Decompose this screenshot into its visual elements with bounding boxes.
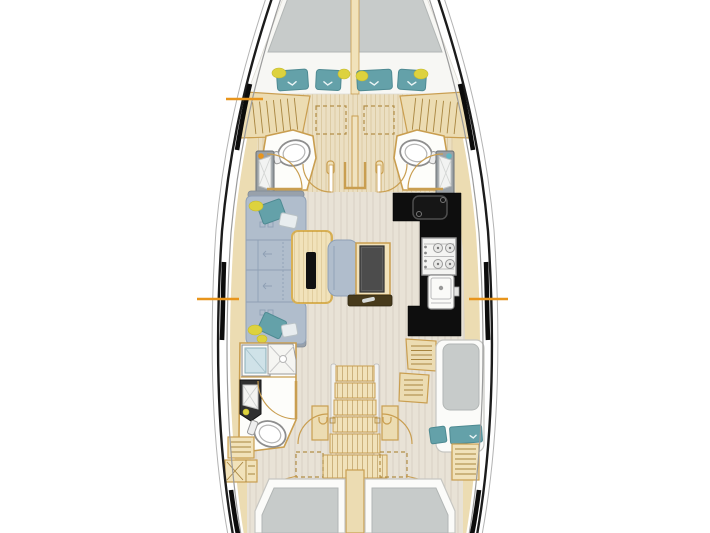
locker-wedge-starboard [400, 92, 470, 138]
salon-table [292, 231, 332, 303]
head-forward-starboard [394, 130, 454, 195]
center-console [346, 470, 364, 533]
stove [422, 238, 456, 275]
pillow [429, 426, 447, 444]
yacht-floor-plan: Sailing yacht interior layout — top-down… [0, 0, 710, 533]
sofa-pillow-white [279, 212, 298, 228]
shower-bench [242, 345, 270, 376]
single-berth [429, 340, 484, 452]
hull-window [486, 262, 488, 340]
pillow [449, 425, 482, 444]
pen-tray [348, 295, 392, 306]
shower-stall [268, 344, 296, 374]
shelf-aft [452, 444, 479, 480]
head-aft-port [239, 343, 296, 451]
reading-light [414, 69, 428, 79]
cushion-accent [257, 335, 267, 343]
reading-light [356, 71, 368, 81]
berth-port [255, 479, 345, 533]
reading-light [272, 68, 286, 78]
floor-plan-stage: Sailing yacht interior layout — top-down… [0, 0, 710, 533]
table-leaf-slot [306, 252, 316, 289]
cabin-door-leaf [377, 165, 381, 192]
cushion-accent [248, 325, 262, 335]
hull-window [222, 262, 224, 340]
locker-lower [399, 373, 429, 403]
galley-sink-lower [428, 275, 459, 309]
sink-handle [454, 287, 459, 296]
reading-light [338, 69, 350, 79]
galley-sink-top [413, 196, 447, 219]
berth-starboard [365, 479, 455, 533]
shower-drain [280, 356, 287, 363]
head-forward-port [256, 130, 316, 195]
nav-seat [328, 240, 358, 296]
sofa-pillow-white [281, 323, 298, 337]
faucet-dot [258, 153, 264, 159]
faucet-dot [243, 409, 249, 415]
faucet-dot [446, 153, 452, 159]
cushion-accent [249, 201, 263, 211]
cabin-door-leaf [329, 165, 333, 192]
pillow [315, 69, 341, 90]
mast-post [352, 116, 358, 188]
chart-table [356, 243, 390, 295]
hanging-locker [406, 339, 436, 371]
